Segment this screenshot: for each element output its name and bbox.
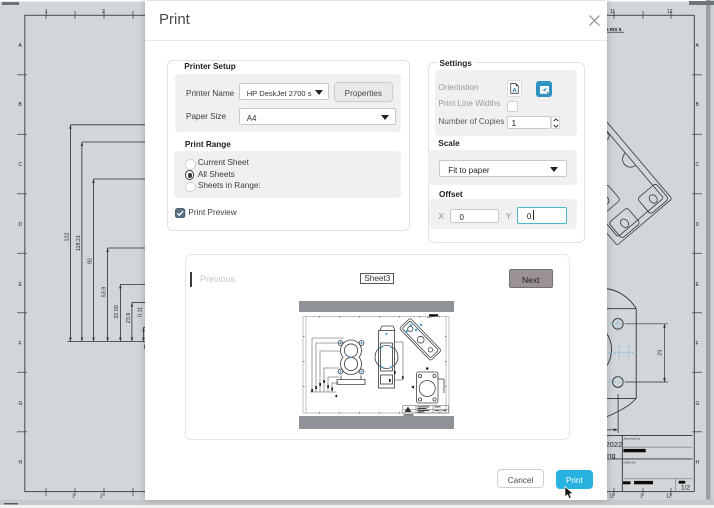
svg-text:23.9: 23.9 — [126, 313, 132, 324]
svg-text:D: D — [696, 222, 700, 228]
svg-text:G: G — [696, 401, 700, 407]
svg-text:12: 12 — [666, 494, 672, 500]
svg-text:92: 92 — [88, 258, 94, 264]
svg-text:2: 2 — [102, 9, 105, 15]
svg-text:11: 11 — [609, 494, 614, 500]
svg-text:G: G — [19, 401, 23, 407]
svg-text:1: 1 — [640, 494, 643, 500]
svg-text:DWG No: DWG No — [624, 461, 636, 465]
svg-text:122: 122 — [64, 233, 70, 242]
svg-text:A: A — [512, 88, 517, 95]
svg-text:C: C — [696, 162, 700, 168]
svg-text:C: C — [19, 162, 23, 168]
svg-text:11: 11 — [610, 9, 615, 15]
svg-text:2022: 2022 — [606, 440, 623, 449]
svg-text:H: H — [19, 460, 23, 466]
svg-text:0.11: 0.11 — [138, 307, 144, 317]
svg-text:118.21: 118.21 — [76, 235, 82, 251]
svg-text:2: 2 — [100, 494, 103, 500]
svg-text:ing: ing — [606, 451, 616, 460]
svg-text:F: F — [19, 341, 22, 347]
svg-text:D: D — [19, 222, 23, 228]
svg-text:12: 12 — [667, 9, 673, 15]
svg-text:32.00: 32.00 — [114, 305, 120, 319]
svg-text:1/2: 1/2 — [681, 485, 690, 492]
svg-text:1: 1 — [72, 494, 75, 500]
svg-text:5 R/S 5: 5 R/S 5 — [606, 27, 622, 32]
svg-text:29: 29 — [658, 350, 664, 356]
svg-text:H: H — [696, 460, 700, 466]
svg-text:1: 1 — [45, 9, 48, 15]
svg-text:Approved by: Approved by — [624, 437, 641, 441]
svg-text:53.9: 53.9 — [101, 287, 107, 298]
svg-text:F: F — [696, 341, 699, 347]
